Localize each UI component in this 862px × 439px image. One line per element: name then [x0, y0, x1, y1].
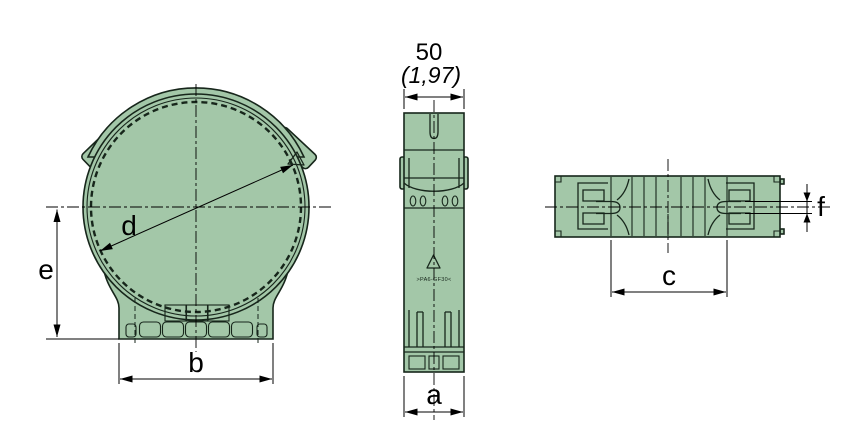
dimension-c: c [611, 240, 727, 297]
dim-f-arrow-lower [804, 214, 811, 223]
dim-d-label: d [121, 210, 137, 241]
dim-e-label: e [38, 254, 54, 285]
dim-a-label: a [426, 379, 442, 410]
width-inch-label: (1,97) [401, 62, 461, 88]
dim-c-label: c [662, 260, 676, 291]
top-view: c f [545, 159, 833, 297]
dimension-b: b [119, 343, 273, 384]
dim-f-arrow-upper [804, 193, 811, 202]
clamp-technical-drawing: d e b 50 (1,97) [0, 0, 862, 439]
side-view: 50 (1,97) >PA6-GF30< a [400, 39, 468, 420]
dim-b-label: b [188, 347, 204, 378]
front-view: d e b [38, 84, 332, 384]
dim-f-label: f [817, 191, 825, 222]
technical-drawing-page: d e b 50 (1,97) [0, 0, 862, 439]
